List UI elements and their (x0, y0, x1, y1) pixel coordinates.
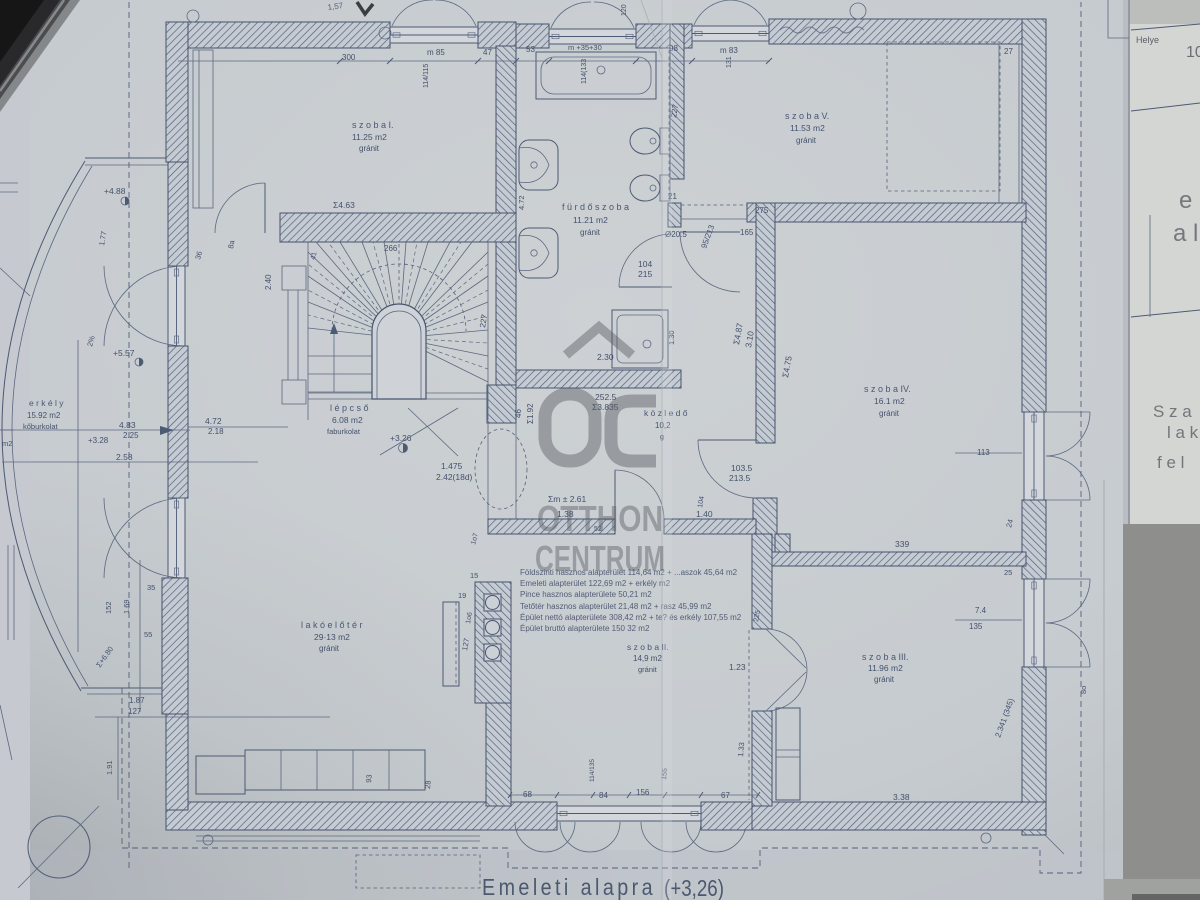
svg-text:46: 46 (514, 409, 523, 418)
svg-text:OTTHON: OTTHON (537, 498, 663, 539)
svg-text:113: 113 (977, 448, 990, 457)
svg-text:3.38: 3.38 (893, 792, 910, 802)
svg-text:s z o b a III.: s z o b a III. (862, 652, 909, 662)
svg-text:11.96 m2: 11.96 m2 (868, 663, 903, 673)
svg-text:Tetőtér hasznos alapterület 2: Tetőtér hasznos alapterület 21,48 m2 + r… (520, 602, 712, 611)
svg-text:gránit: gránit (796, 136, 817, 145)
svg-text:1.69: 1.69 (122, 599, 131, 614)
svg-text:53: 53 (526, 45, 535, 54)
svg-text:35: 35 (147, 583, 155, 592)
svg-text:f ü r d ő s z o b a: f ü r d ő s z o b a (562, 202, 629, 212)
svg-text:a l: a l (1173, 220, 1198, 247)
svg-text:Emeleti alapra: Emeleti alapra (482, 874, 656, 900)
svg-text:8o: 8o (1079, 686, 1088, 694)
svg-text:l é p c s ő: l é p c s ő (330, 403, 369, 413)
svg-text:s z o b a V.: s z o b a V. (785, 111, 829, 121)
svg-text:gránit: gránit (879, 409, 900, 418)
svg-text:4.83: 4.83 (119, 420, 136, 430)
svg-text:4.72: 4.72 (517, 195, 526, 210)
svg-text:e: e (1179, 187, 1192, 214)
svg-text:gránit: gránit (580, 228, 601, 237)
svg-text:11.21 m2: 11.21 m2 (573, 215, 608, 225)
svg-text:Emeleti alapterület 122,69 m2: Emeleti alapterület 122,69 m2 + erkély m… (520, 579, 671, 588)
svg-text:67: 67 (721, 791, 730, 800)
svg-text:gránit: gránit (359, 144, 380, 153)
svg-text:m2: m2 (2, 439, 12, 448)
svg-text:275: 275 (755, 206, 769, 215)
svg-text:6.08 m2: 6.08 m2 (332, 415, 363, 425)
svg-text:e r k é l y: e r k é l y (29, 398, 64, 408)
svg-text:S z a: S z a (1153, 402, 1192, 421)
svg-text:7.4: 7.4 (975, 606, 987, 615)
svg-text:1.40: 1.40 (696, 509, 713, 519)
svg-text:(+3,26): (+3,26) (664, 875, 724, 900)
svg-text:266: 266 (384, 244, 398, 253)
svg-text:11.25 m2: 11.25 m2 (352, 132, 387, 142)
svg-text:m 85: m 85 (427, 48, 445, 57)
svg-text:Pince hasznos alapterülete 50: Pince hasznos alapterülete 50,21 m2 (520, 590, 652, 599)
svg-text:114/135: 114/135 (589, 759, 596, 782)
svg-text:27: 27 (1004, 47, 1013, 56)
svg-text:15: 15 (470, 571, 478, 580)
svg-text:114/115: 114/115 (423, 64, 430, 88)
svg-text:l a k: l a k (1167, 423, 1199, 442)
svg-text:2.18: 2.18 (208, 427, 224, 436)
svg-text:l a k ó e l ő t é r: l a k ó e l ő t é r (301, 620, 363, 630)
svg-text:Épület bruttó alapterülete 15: Épület bruttó alapterülete 150 32 m2 (520, 624, 650, 633)
svg-text:2.30: 2.30 (597, 352, 614, 362)
svg-text:131: 131 (726, 56, 733, 68)
svg-text:15.92 m2: 15.92 m2 (27, 411, 61, 420)
svg-text:gránit: gránit (638, 665, 658, 674)
svg-text:Σ1.92: Σ1.92 (526, 403, 535, 424)
svg-text:2.40: 2.40 (264, 274, 273, 290)
svg-text:1.87: 1.87 (129, 696, 145, 705)
svg-text:84: 84 (599, 791, 608, 800)
svg-text:103.5: 103.5 (731, 463, 753, 473)
svg-text:25: 25 (1004, 568, 1012, 577)
svg-text:m +35+30: m +35+30 (568, 43, 602, 52)
svg-text:Helye: Helye (1136, 35, 1159, 45)
svg-text:CENTRUM: CENTRUM (535, 538, 665, 579)
svg-text:2.25: 2.25 (123, 431, 139, 440)
svg-text:114(133: 114(133 (581, 59, 588, 84)
svg-text:47: 47 (483, 48, 492, 57)
svg-text:+3.28: +3.28 (88, 436, 109, 445)
svg-text:1.33: 1.33 (736, 742, 746, 757)
svg-text:68: 68 (523, 790, 532, 799)
svg-text:1.475: 1.475 (441, 461, 463, 471)
svg-text:1.23: 1.23 (729, 662, 746, 672)
svg-text:Épület nettó alapterülete 308: Épület nettó alapterülete 308,42 m2 + te… (520, 613, 742, 622)
svg-text:+5.57: +5.57 (113, 348, 135, 358)
svg-text:55: 55 (144, 630, 152, 639)
svg-text:93: 93 (364, 774, 374, 783)
svg-text:135: 135 (969, 622, 983, 631)
svg-text:127: 127 (128, 707, 142, 716)
svg-text:+4.88: +4.88 (104, 186, 126, 196)
svg-text:29·13 m2: 29·13 m2 (314, 632, 350, 642)
svg-text:300: 300 (342, 53, 356, 62)
svg-text:215: 215 (638, 269, 652, 279)
svg-text:s z o b a I.: s z o b a I. (352, 120, 394, 130)
svg-text:339: 339 (895, 539, 909, 549)
svg-text:156: 156 (636, 788, 650, 797)
svg-text:10: 10 (1186, 44, 1200, 61)
svg-text:m 83: m 83 (720, 46, 738, 55)
svg-text:120: 120 (621, 4, 628, 16)
svg-text:s z o b a IV.: s z o b a IV. (864, 384, 911, 394)
svg-text:f e l: f e l (1157, 453, 1184, 472)
svg-text:faburkolat: faburkolat (327, 427, 361, 436)
svg-text:213.5: 213.5 (729, 473, 751, 483)
svg-text:2.42(18d): 2.42(18d) (436, 472, 473, 482)
svg-text:Σ4.63: Σ4.63 (333, 200, 355, 210)
svg-text:16.1 m2: 16.1 m2 (874, 396, 905, 406)
svg-text:11.53 m2: 11.53 m2 (790, 123, 825, 133)
svg-text:1.91: 1.91 (105, 760, 114, 775)
svg-text:2.58: 2.58 (116, 452, 133, 462)
svg-text:19: 19 (458, 591, 466, 600)
svg-text:165: 165 (740, 228, 754, 237)
svg-text:gránit: gránit (319, 644, 340, 653)
svg-text:gránit: gránit (874, 675, 895, 684)
svg-text:152: 152 (104, 601, 113, 614)
svg-text:14,9 m2: 14,9 m2 (633, 654, 662, 663)
svg-text:28: 28 (423, 780, 433, 789)
svg-text:104: 104 (638, 259, 652, 269)
svg-text:4.72: 4.72 (205, 416, 222, 426)
